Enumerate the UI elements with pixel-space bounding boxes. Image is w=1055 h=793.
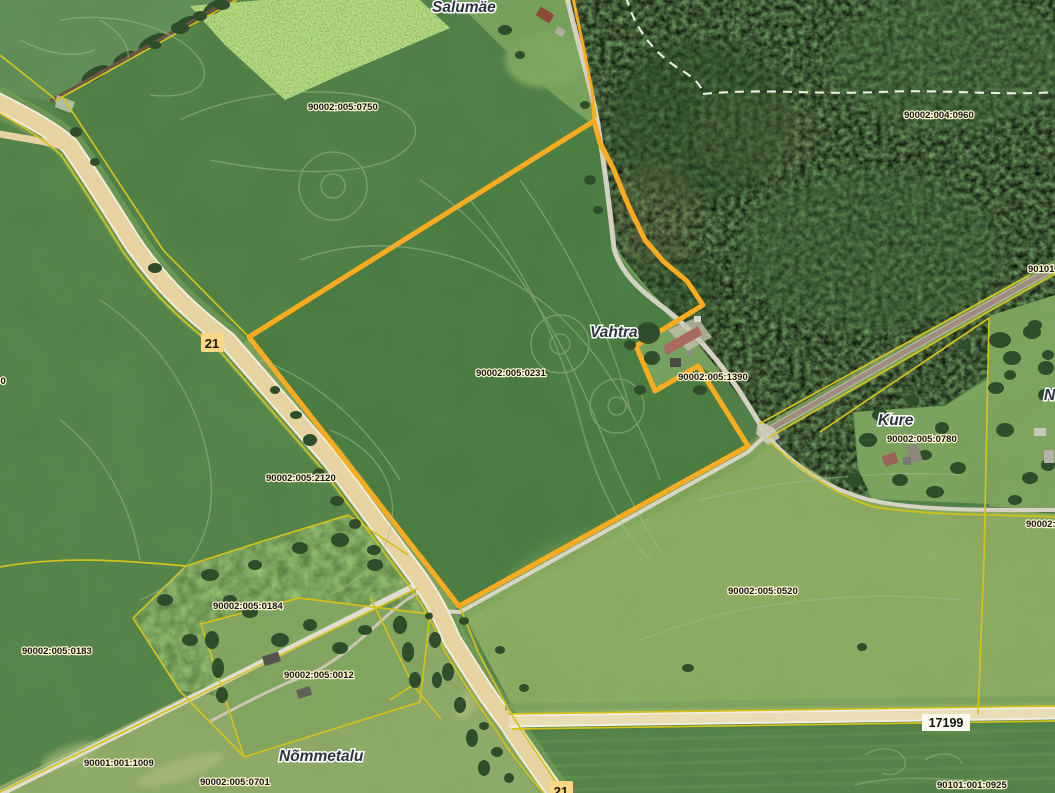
svg-text:21: 21 <box>554 784 568 793</box>
svg-text:90002:004:0960: 90002:004:0960 <box>904 110 974 121</box>
svg-text:90002:005:0183: 90002:005:0183 <box>22 646 92 657</box>
svg-text:90002:005:1390: 90002:005:1390 <box>678 372 748 383</box>
svg-text:90002:005:0184: 90002:005:0184 <box>213 601 283 612</box>
svg-text:Nõmmetalu: Nõmmetalu <box>279 748 364 765</box>
svg-text:17199: 17199 <box>929 716 964 730</box>
svg-text:90101:001:0925: 90101:001:0925 <box>937 780 1007 791</box>
svg-text:90002:005:0012: 90002:005:0012 <box>284 670 354 681</box>
svg-text:90002:005:2120: 90002:005:2120 <box>266 473 336 484</box>
svg-text:90002:005:0750: 90002:005:0750 <box>308 102 378 113</box>
svg-text::00: :00 <box>0 376 6 387</box>
svg-text:N: N <box>1044 387 1055 404</box>
svg-text:90001:001:1009: 90001:001:1009 <box>84 758 154 769</box>
svg-text:90002:005:0520: 90002:005:0520 <box>728 586 798 597</box>
svg-text:90101: 90101 <box>1028 264 1055 275</box>
svg-text:90002:005:0780: 90002:005:0780 <box>887 434 957 445</box>
svg-text:90002:005:0701: 90002:005:0701 <box>200 777 270 788</box>
svg-text:90002:0: 90002:0 <box>1026 519 1055 530</box>
svg-text:Vahtra: Vahtra <box>590 324 638 341</box>
svg-text:90002:005:0231: 90002:005:0231 <box>476 368 546 379</box>
svg-text:Salumäe: Salumäe <box>432 0 496 16</box>
svg-text:21: 21 <box>205 336 219 351</box>
svg-text:Kure: Kure <box>878 412 914 429</box>
